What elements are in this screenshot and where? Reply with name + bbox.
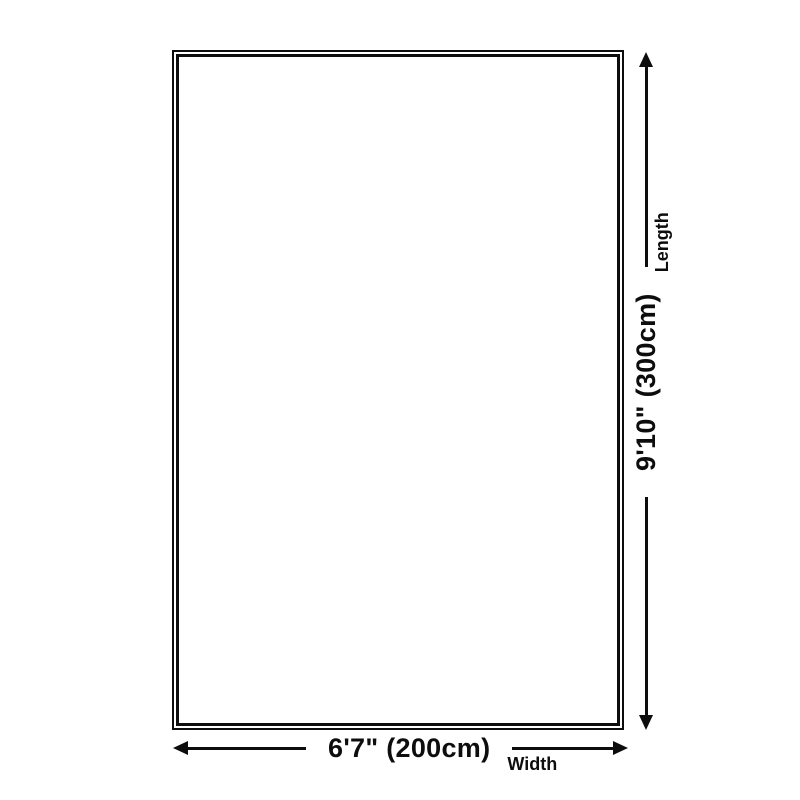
- arrow-up-icon: [639, 52, 653, 67]
- width-value: 6'7" (200cm): [328, 735, 490, 762]
- width-label: Width: [507, 755, 557, 773]
- width-dimension-line-right: Width: [512, 747, 613, 750]
- length-value: 9'10" (300cm): [633, 293, 660, 471]
- arrow-right-icon: [613, 741, 628, 755]
- arrow-down-icon: [639, 715, 653, 730]
- width-dimension-line-left: [188, 747, 306, 750]
- length-label: Length: [653, 212, 671, 272]
- arrow-left-icon: [173, 741, 188, 755]
- length-dimension: 9'10" (300cm) Length: [631, 52, 661, 730]
- rug-size-diagram: 6'7" (200cm) Width 9'10" (300cm) Length: [0, 0, 800, 800]
- rug-outline: [172, 50, 624, 730]
- rug-outline-inner-border: [176, 54, 620, 726]
- length-dimension-line-bottom: [645, 497, 648, 715]
- length-dimension-line-top: Length: [645, 67, 648, 267]
- width-dimension: 6'7" (200cm) Width: [173, 733, 628, 763]
